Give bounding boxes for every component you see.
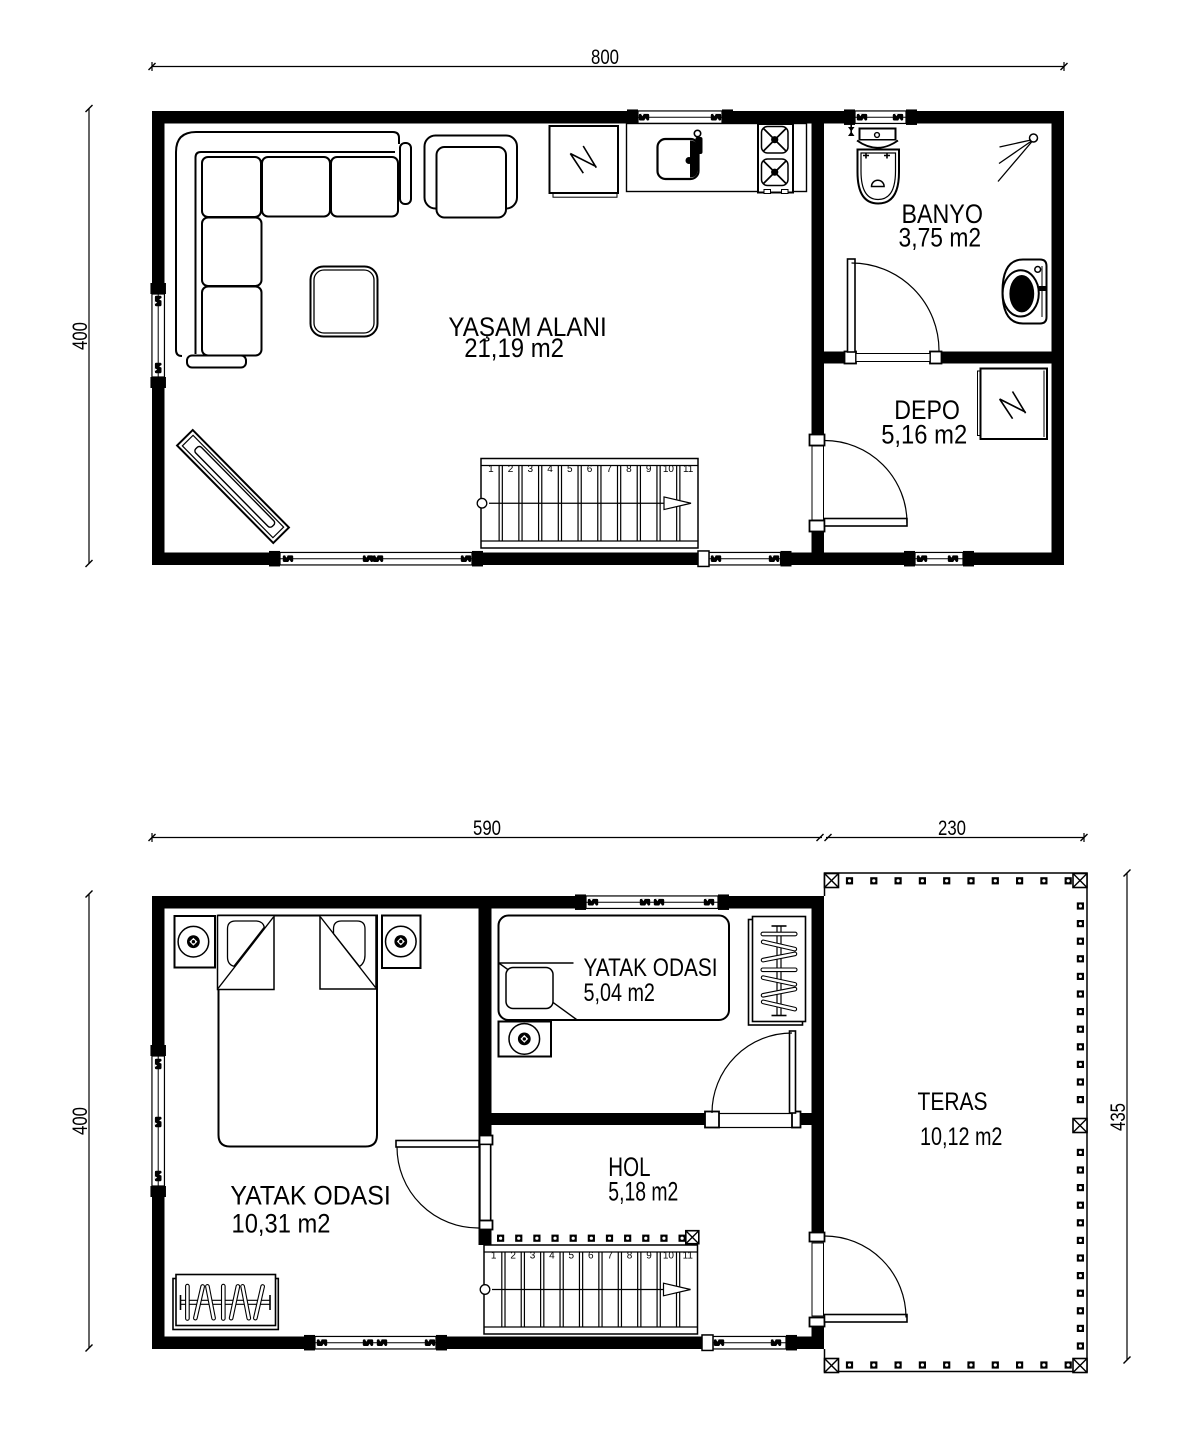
svg-text:8: 8 xyxy=(627,1251,633,1262)
svg-text:11: 11 xyxy=(683,464,694,475)
svg-text:800: 800 xyxy=(591,46,619,69)
svg-text:YATAK ODASI: YATAK ODASI xyxy=(230,1180,390,1210)
svg-text:2: 2 xyxy=(510,1251,516,1262)
svg-text:400: 400 xyxy=(69,1107,92,1135)
svg-text:5: 5 xyxy=(569,1251,575,1262)
svg-text:TERAS: TERAS xyxy=(918,1088,988,1116)
svg-text:1: 1 xyxy=(491,1251,497,1262)
svg-text:10: 10 xyxy=(663,1251,675,1262)
svg-text:7: 7 xyxy=(606,464,612,475)
svg-text:1: 1 xyxy=(488,464,494,475)
svg-text:3,75 m2: 3,75 m2 xyxy=(899,223,982,253)
svg-text:5,04 m2: 5,04 m2 xyxy=(583,979,655,1007)
svg-text:8: 8 xyxy=(626,464,632,475)
svg-text:230: 230 xyxy=(938,817,966,840)
svg-text:21,19 m2: 21,19 m2 xyxy=(464,333,564,363)
svg-text:590: 590 xyxy=(473,817,501,840)
svg-text:5,16 m2: 5,16 m2 xyxy=(881,420,967,450)
svg-text:4: 4 xyxy=(549,1251,555,1262)
svg-text:9: 9 xyxy=(646,1251,652,1262)
svg-text:2: 2 xyxy=(508,464,514,475)
svg-text:9: 9 xyxy=(646,464,652,475)
svg-text:5: 5 xyxy=(567,464,573,475)
svg-text:6: 6 xyxy=(588,1251,594,1262)
svg-text:435: 435 xyxy=(1107,1103,1130,1131)
svg-text:YATAK ODASI: YATAK ODASI xyxy=(583,954,717,982)
svg-text:6: 6 xyxy=(587,464,593,475)
svg-text:3: 3 xyxy=(530,1251,536,1262)
svg-text:10: 10 xyxy=(663,464,675,475)
svg-text:11: 11 xyxy=(683,1251,694,1262)
svg-text:7: 7 xyxy=(607,1251,613,1262)
svg-text:10,31 m2: 10,31 m2 xyxy=(232,1209,331,1239)
svg-text:4: 4 xyxy=(547,464,553,475)
svg-text:3: 3 xyxy=(528,464,534,475)
svg-text:400: 400 xyxy=(69,322,92,350)
svg-text:5,18 m2: 5,18 m2 xyxy=(608,1177,678,1207)
svg-text:10,12 m2: 10,12 m2 xyxy=(920,1123,1003,1151)
